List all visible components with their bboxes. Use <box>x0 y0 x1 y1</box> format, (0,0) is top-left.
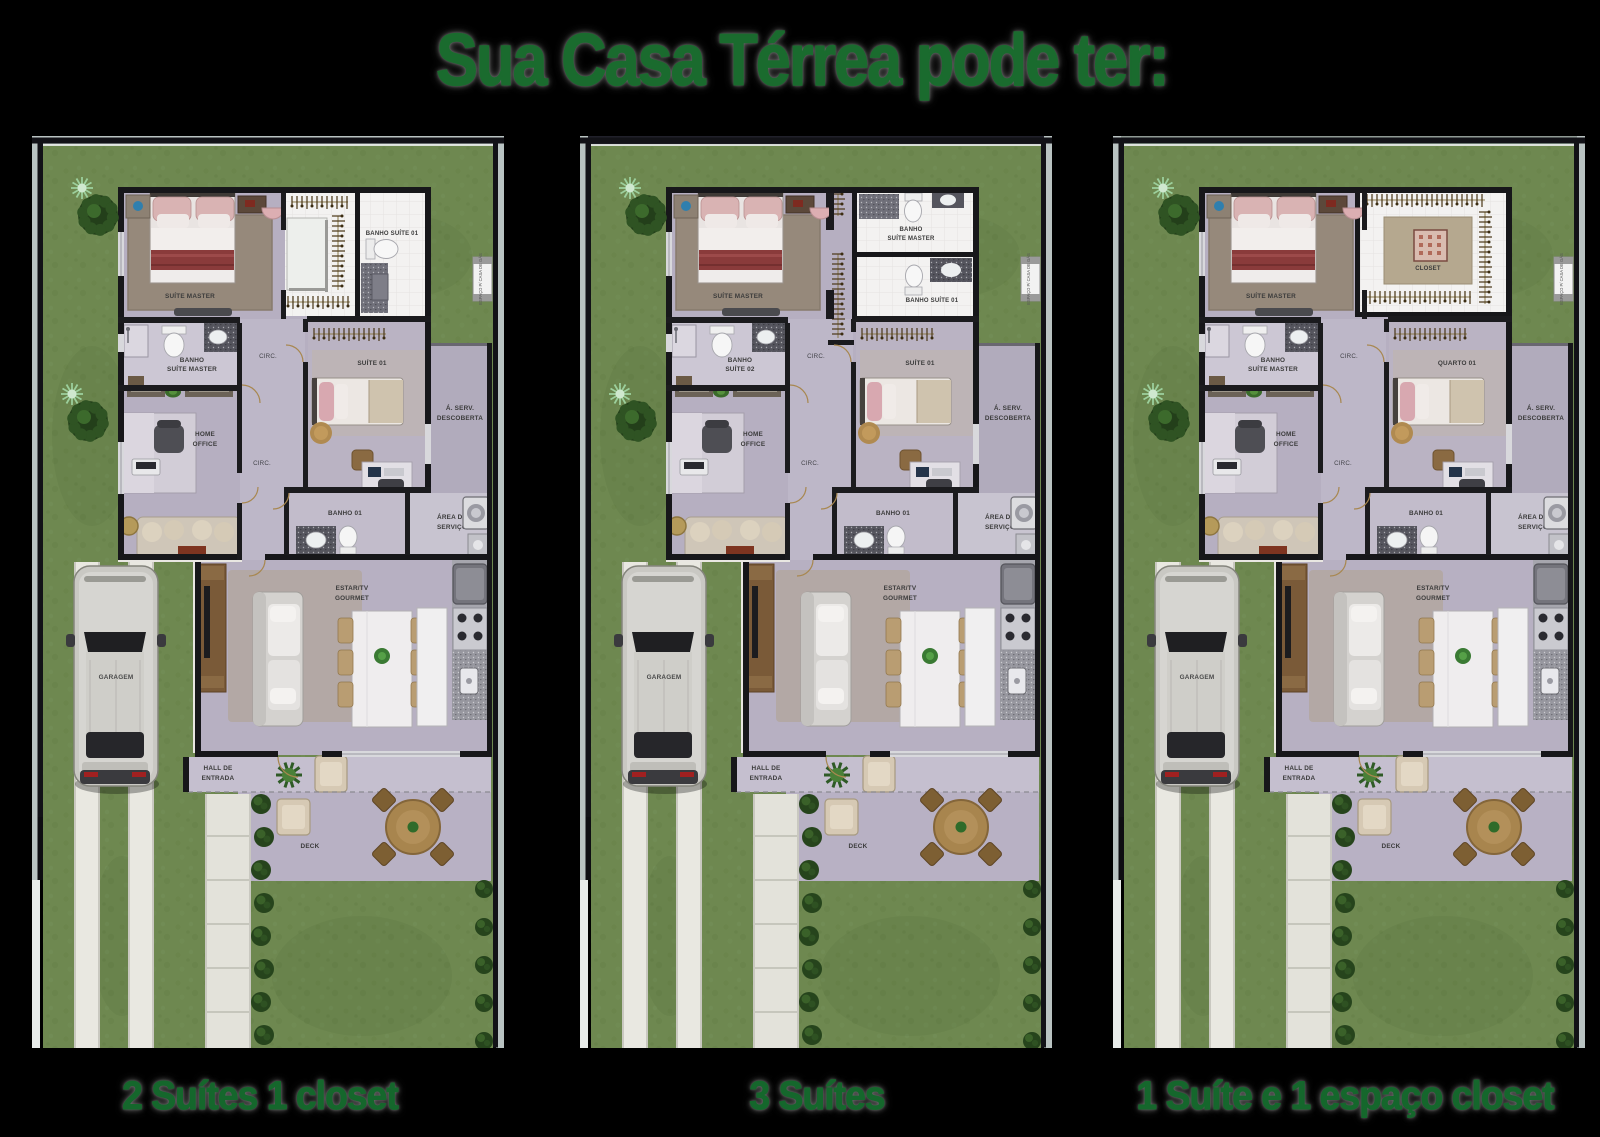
svg-text:CIRC.: CIRC. <box>807 353 825 360</box>
svg-text:ESPAÇO P/ CASA DE GÁS: ESPAÇO P/ CASA DE GÁS <box>478 253 483 305</box>
svg-text:Á. SERV.: Á. SERV. <box>1527 403 1555 412</box>
svg-text:SUÍTE 01: SUÍTE 01 <box>357 358 387 367</box>
svg-text:DESCOBERTA: DESCOBERTA <box>437 415 483 422</box>
svg-text:DECK: DECK <box>301 843 320 850</box>
svg-text:BANHO 01: BANHO 01 <box>876 510 910 517</box>
svg-text:OFFICE: OFFICE <box>193 441 218 448</box>
svg-text:GOURMET: GOURMET <box>1416 595 1450 602</box>
svg-text:Á. SERV.: Á. SERV. <box>994 403 1022 412</box>
svg-text:GOURMET: GOURMET <box>883 595 917 602</box>
svg-text:GARAGEM: GARAGEM <box>1180 674 1215 681</box>
svg-text:BANHO 01: BANHO 01 <box>1409 510 1443 517</box>
svg-text:CIRC.: CIRC. <box>253 460 271 467</box>
svg-text:DESCOBERTA: DESCOBERTA <box>985 415 1031 422</box>
svg-text:GOURMET: GOURMET <box>335 595 369 602</box>
svg-text:ESTAR/TV: ESTAR/TV <box>1417 585 1450 592</box>
svg-text:BANHO: BANHO <box>728 357 752 364</box>
svg-text:HOME: HOME <box>1276 431 1297 438</box>
svg-text:SUÍTE 01: SUÍTE 01 <box>905 358 935 367</box>
svg-text:ESTAR/TV: ESTAR/TV <box>336 585 369 592</box>
svg-text:BANHO SUÍTE 01: BANHO SUÍTE 01 <box>906 296 959 304</box>
svg-text:HOME: HOME <box>195 431 216 438</box>
svg-text:CIRC.: CIRC. <box>259 353 277 360</box>
svg-text:SUÍTE MASTER: SUÍTE MASTER <box>165 291 215 300</box>
svg-text:SUÍTE 02: SUÍTE 02 <box>725 364 755 373</box>
svg-text:HOME: HOME <box>743 431 764 438</box>
svg-text:ESPAÇO P/ CASA DE GÁS: ESPAÇO P/ CASA DE GÁS <box>1559 253 1564 305</box>
svg-text:HALL DE: HALL DE <box>1285 765 1315 772</box>
svg-text:ESTAR/TV: ESTAR/TV <box>884 585 917 592</box>
svg-text:ENTRADA: ENTRADA <box>1283 775 1316 782</box>
svg-text:CIRC.: CIRC. <box>801 460 819 467</box>
svg-text:SUÍTE MASTER: SUÍTE MASTER <box>713 291 763 300</box>
svg-text:OFFICE: OFFICE <box>741 441 766 448</box>
svg-text:Á. SERV.: Á. SERV. <box>446 403 474 412</box>
svg-text:SUÍTE MASTER: SUÍTE MASTER <box>887 234 935 242</box>
svg-text:SUÍTE MASTER: SUÍTE MASTER <box>167 364 217 373</box>
svg-text:HALL DE: HALL DE <box>204 765 234 772</box>
svg-text:ENTRADA: ENTRADA <box>202 775 235 782</box>
svg-text:GARAGEM: GARAGEM <box>99 674 134 681</box>
svg-text:SUÍTE MASTER: SUÍTE MASTER <box>1246 291 1296 300</box>
svg-text:BANHO: BANHO <box>180 357 204 364</box>
svg-text:CLOSET: CLOSET <box>1415 266 1441 272</box>
svg-text:CIRC.: CIRC. <box>1334 460 1352 467</box>
svg-text:OFFICE: OFFICE <box>1274 441 1299 448</box>
svg-text:BANHO SUÍTE 01: BANHO SUÍTE 01 <box>366 229 419 237</box>
svg-text:QUARTO 01: QUARTO 01 <box>1438 360 1477 367</box>
svg-text:DECK: DECK <box>1382 843 1401 850</box>
svg-text:ENTRADA: ENTRADA <box>750 775 783 782</box>
svg-text:BANHO 01: BANHO 01 <box>328 510 362 517</box>
svg-text:GARAGEM: GARAGEM <box>647 674 682 681</box>
svg-text:DECK: DECK <box>849 843 868 850</box>
svg-text:HALL DE: HALL DE <box>752 765 782 772</box>
svg-text:DESCOBERTA: DESCOBERTA <box>1518 415 1564 422</box>
svg-text:CIRC.: CIRC. <box>1340 353 1358 360</box>
svg-text:ESPAÇO P/ CASA DE GÁS: ESPAÇO P/ CASA DE GÁS <box>1026 253 1031 305</box>
svg-text:SUÍTE MASTER: SUÍTE MASTER <box>1248 364 1298 373</box>
svg-text:BANHO: BANHO <box>1261 357 1285 364</box>
svg-text:BANHO: BANHO <box>900 227 923 233</box>
